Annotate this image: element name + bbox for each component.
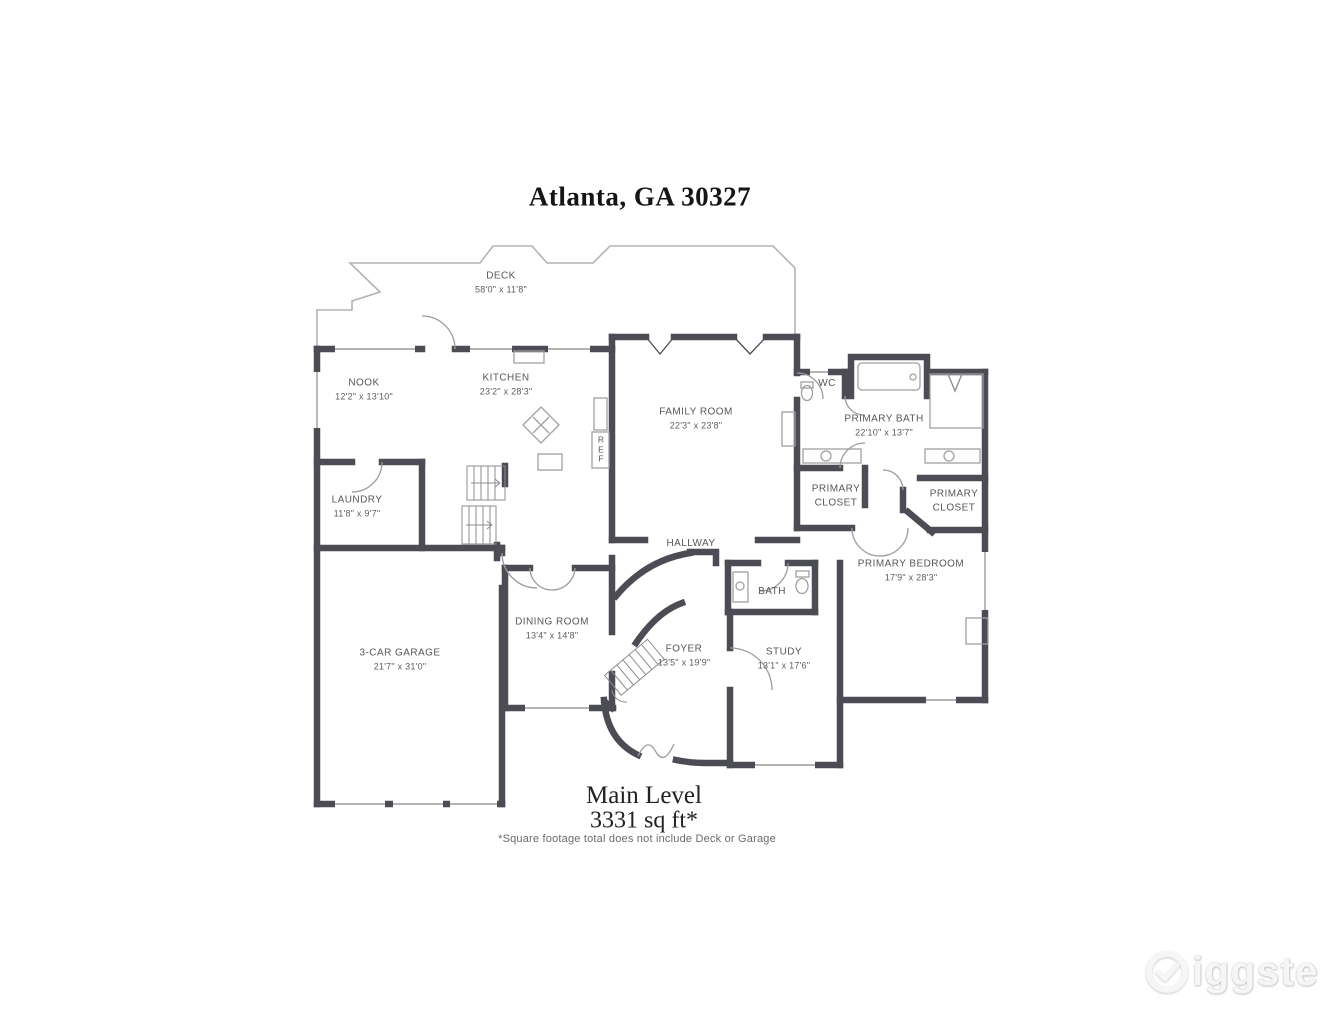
giggster-logo-icon (1144, 949, 1190, 995)
cooktop (514, 351, 544, 363)
room-label-family-room: FAMILY ROOM 22'3" x 23'8" (659, 407, 732, 432)
room-label-foyer: FOYER 13'5" x 19'9" (658, 644, 711, 669)
shower (930, 374, 983, 428)
room-label-primary-closet-right: PRIMARY CLOSET (925, 488, 983, 515)
room-label-primary-bedroom: PRIMARY BEDROOM 17'9" x 28'3" (858, 559, 964, 584)
room-label-deck: DECK 58'0" x 11'8" (475, 271, 527, 296)
bath-sink (733, 572, 748, 602)
bath-toilet (796, 579, 808, 594)
counter (594, 398, 607, 430)
refrigerator-label: REF (597, 436, 606, 465)
room-label-study: STUDY 13'1" x 17'6" (758, 647, 811, 672)
watermark: iggster (1144, 948, 1320, 995)
room-label-kitchen: KITCHEN 23'2" x 28'3" (480, 373, 533, 398)
room-label-dining-room: DINING ROOM 13'4" x 14'8" (515, 617, 589, 642)
room-label-nook: NOOK 12'2" x 13'10" (335, 378, 393, 403)
floorplan-drawing (0, 0, 1320, 1020)
door-arcs (352, 316, 962, 757)
fixtures (514, 351, 988, 644)
room-label-wc: WC (818, 378, 836, 391)
room-label-hallway: HALLWAY (666, 538, 715, 551)
level-title: Main Level (586, 782, 702, 810)
floorplan-page: Atlanta, GA 30327 (0, 0, 1320, 1020)
watermark-wordmark: iggster (1192, 948, 1320, 995)
room-label-primary-bath: PRIMARY BATH 22'10" x 13'7" (844, 414, 923, 439)
stairs (462, 466, 664, 702)
room-label-primary-closet-left: PRIMARY CLOSET (807, 483, 865, 510)
room-label-bath: BATH (758, 586, 786, 599)
family-fireplace (782, 412, 795, 446)
vanity-right (925, 449, 980, 463)
room-label-garage: 3-CAR GARAGE 21'7" x 31'0" (360, 648, 441, 673)
footnote: *Square footage total does not include D… (498, 833, 776, 845)
vanity-left (803, 449, 861, 463)
room-label-laundry: LAUNDRY 11'8" x 9'7" (332, 495, 383, 520)
level-area: 3331 sq ft* (590, 808, 698, 835)
deck-outline (317, 246, 795, 348)
